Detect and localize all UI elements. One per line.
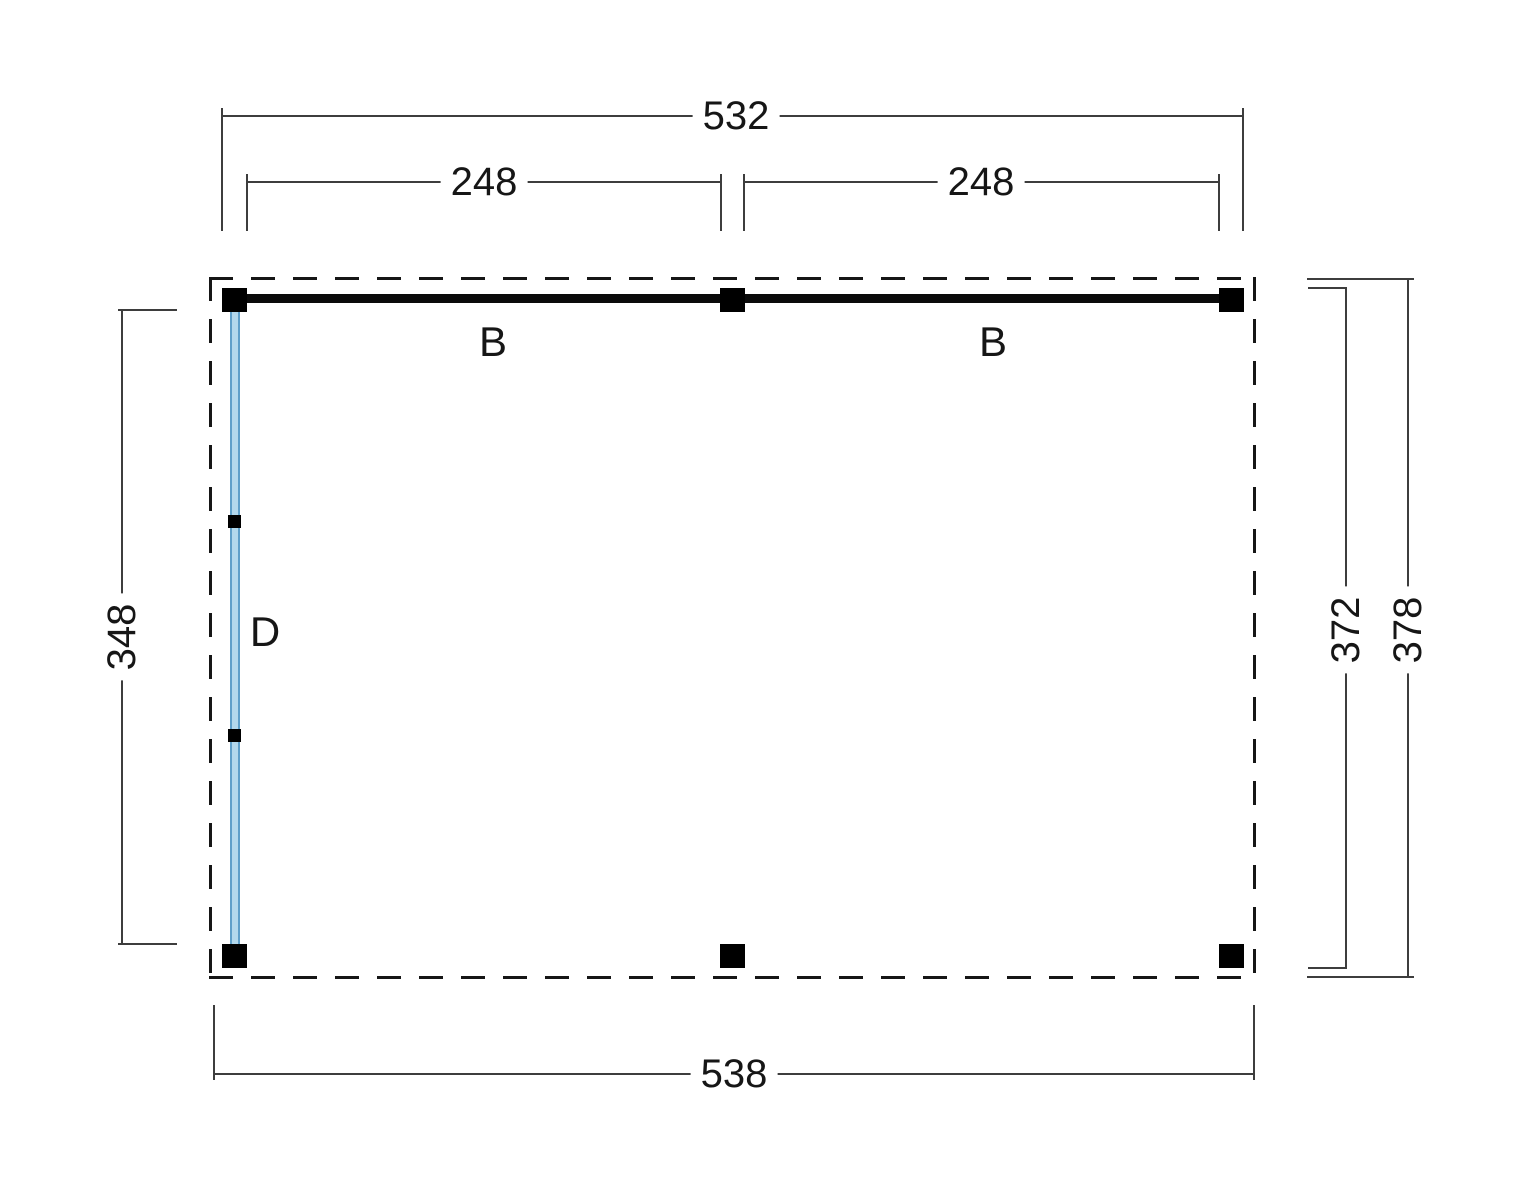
dim-bottom-total-value: 538 bbox=[691, 1053, 778, 1095]
post-top-right bbox=[1219, 288, 1244, 312]
outline-top-edge bbox=[209, 277, 1256, 280]
floor-plan-canvas: B B D 532 248 248 538 348 372 378 bbox=[0, 0, 1530, 1188]
dim-top-total-value: 532 bbox=[693, 95, 780, 137]
outline-bottom-edge bbox=[209, 976, 1256, 979]
post-bottom-left bbox=[222, 944, 247, 968]
wall-post-lower bbox=[228, 729, 241, 742]
dim-bottom-total-ext-right bbox=[1253, 1005, 1255, 1080]
dim-span-right-ext-left bbox=[743, 174, 745, 231]
outline-right-edge bbox=[1253, 277, 1256, 979]
post-bottom-middle bbox=[720, 944, 745, 968]
dim-right-outer-tick-top bbox=[1307, 278, 1414, 280]
beam-label-left: B bbox=[479, 321, 507, 363]
post-top-left bbox=[222, 288, 247, 312]
dim-right-outer-value: 378 bbox=[1387, 587, 1429, 674]
dim-right-inner-value: 372 bbox=[1325, 587, 1367, 674]
dim-right-outer-tick-bottom bbox=[1307, 976, 1414, 978]
dim-span-left-ext-right bbox=[720, 174, 722, 231]
dim-right-inner-tick-top bbox=[1308, 287, 1347, 289]
wall-post-upper bbox=[228, 515, 241, 528]
dim-top-total-ext-left bbox=[221, 108, 223, 231]
post-bottom-right bbox=[1219, 944, 1244, 968]
dim-bottom-total-ext-left bbox=[213, 1005, 215, 1080]
dim-span-right-ext-right bbox=[1218, 174, 1220, 231]
post-top-middle bbox=[720, 288, 745, 312]
dim-top-total-ext-right bbox=[1242, 108, 1244, 231]
wall-d bbox=[230, 310, 240, 944]
outline-left-edge bbox=[209, 277, 212, 979]
dim-left-tick-top bbox=[118, 309, 177, 311]
dim-span-left-ext-left bbox=[246, 174, 248, 231]
beam-label-right: B bbox=[979, 321, 1007, 363]
dim-span-left-value: 248 bbox=[441, 161, 528, 203]
wall-label-d: D bbox=[250, 611, 280, 653]
dim-left-tick-bottom bbox=[118, 943, 177, 945]
dim-left-value: 348 bbox=[101, 594, 143, 681]
dim-span-right-value: 248 bbox=[938, 161, 1025, 203]
dim-right-inner-tick-bottom bbox=[1308, 967, 1347, 969]
